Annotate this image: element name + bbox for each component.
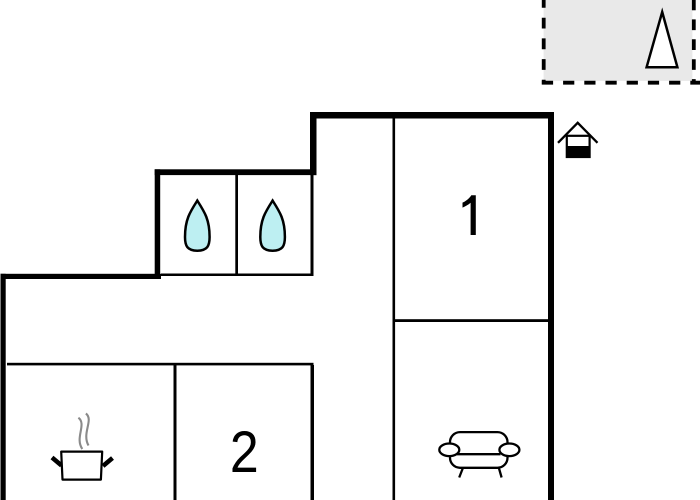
svg-text:2: 2 bbox=[230, 419, 259, 485]
